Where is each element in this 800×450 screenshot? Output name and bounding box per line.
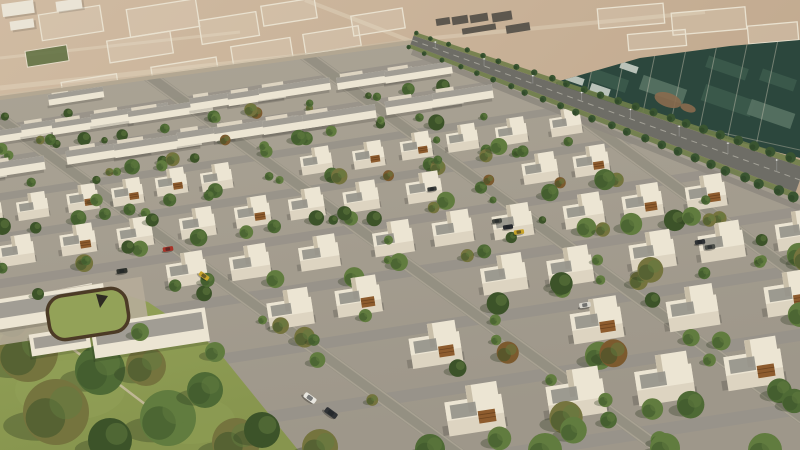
rendering-canvas	[0, 0, 800, 450]
aerial-masterplan-rendering	[0, 0, 800, 450]
